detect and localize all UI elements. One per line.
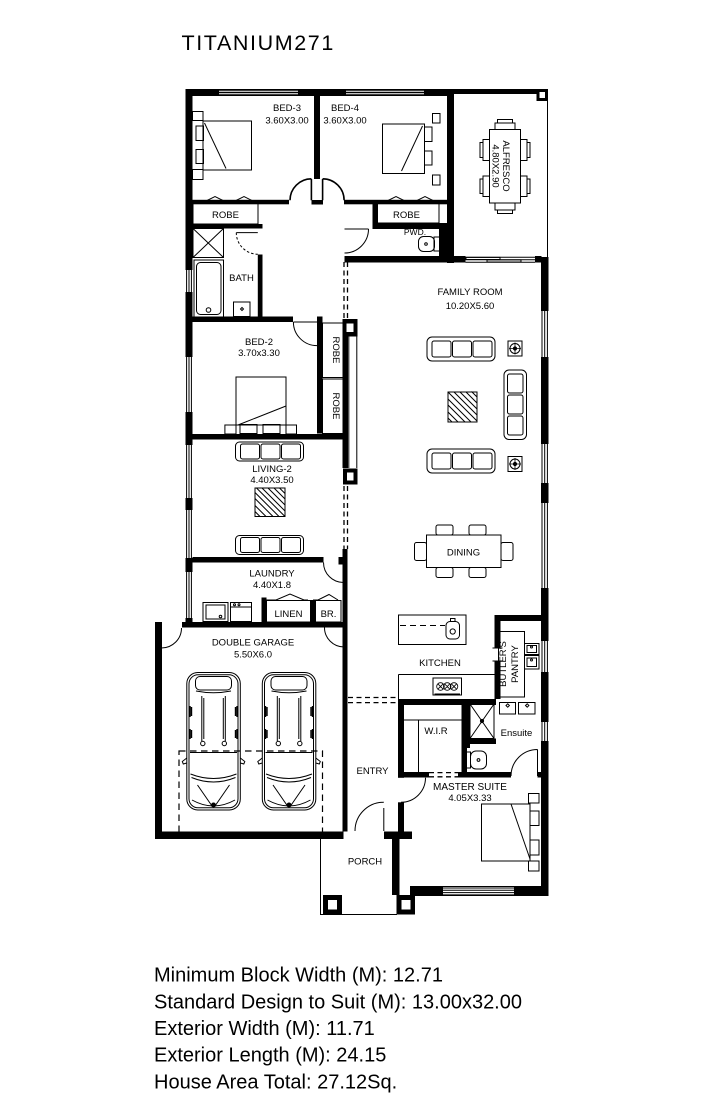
svg-text:Exterior Width (M): 11.71: Exterior Width (M): 11.71 bbox=[154, 1018, 375, 1040]
svg-text:MASTER SUITE: MASTER SUITE bbox=[433, 782, 507, 793]
svg-text:DINING: DINING bbox=[447, 548, 480, 559]
svg-text:DOUBLE GARAGE: DOUBLE GARAGE bbox=[212, 638, 294, 649]
svg-text:ROBE: ROBE bbox=[330, 393, 341, 420]
svg-text:KITCHEN: KITCHEN bbox=[419, 658, 461, 669]
svg-text:LAUNDRY: LAUNDRY bbox=[249, 569, 295, 580]
svg-text:LINEN: LINEN bbox=[275, 609, 303, 620]
svg-text:Ensuite: Ensuite bbox=[501, 728, 533, 739]
svg-text:Exterior Length (M): 24.15: Exterior Length (M): 24.15 bbox=[154, 1045, 386, 1067]
svg-text:ALFRESCO: ALFRESCO bbox=[500, 140, 511, 191]
svg-text:BED-4: BED-4 bbox=[331, 103, 359, 114]
svg-text:ROBE: ROBE bbox=[330, 337, 341, 364]
svg-text:BATH: BATH bbox=[229, 273, 254, 284]
svg-text:4.40X3.50: 4.40X3.50 bbox=[250, 475, 293, 486]
svg-text:ROBE: ROBE bbox=[393, 210, 420, 221]
svg-text:W.I.R: W.I.R bbox=[424, 726, 447, 737]
svg-text:4.40X1.8: 4.40X1.8 bbox=[253, 580, 291, 591]
svg-text:3.60X3.00: 3.60X3.00 bbox=[323, 116, 366, 127]
svg-text:10.20X5.60: 10.20X5.60 bbox=[446, 301, 495, 312]
svg-text:3.70x3.30: 3.70x3.30 bbox=[238, 348, 280, 359]
svg-text:BED-2: BED-2 bbox=[245, 337, 273, 348]
svg-text:Standard Design to Suit (M): 1: Standard Design to Suit (M): 13.00x32.00 bbox=[154, 992, 522, 1014]
svg-text:LIVING-2: LIVING-2 bbox=[252, 464, 292, 475]
svg-text:ROBE: ROBE bbox=[212, 210, 239, 221]
svg-text:BR.: BR. bbox=[321, 609, 337, 620]
svg-text:5.50X6.0: 5.50X6.0 bbox=[234, 650, 272, 661]
svg-text:BED-3: BED-3 bbox=[273, 103, 301, 114]
svg-text:4.80X2.90: 4.80X2.90 bbox=[490, 144, 501, 187]
svg-text:FAMILY ROOM: FAMILY ROOM bbox=[437, 287, 502, 298]
svg-text:PANTRY: PANTRY bbox=[510, 645, 521, 683]
svg-text:3.60X3.00: 3.60X3.00 bbox=[265, 116, 308, 127]
svg-text:Minimum Block Width (M): 12.71: Minimum Block Width (M): 12.71 bbox=[154, 965, 443, 987]
svg-text:ENTRY: ENTRY bbox=[356, 766, 389, 777]
svg-text:PORCH: PORCH bbox=[348, 857, 382, 868]
svg-text:4.05X3.33: 4.05X3.33 bbox=[448, 793, 491, 804]
svg-text:House Area Total: 27.12Sq.: House Area Total: 27.12Sq. bbox=[154, 1072, 397, 1094]
svg-text:PWD.: PWD. bbox=[404, 227, 426, 237]
svg-text:TITANIUM271: TITANIUM271 bbox=[182, 31, 335, 55]
